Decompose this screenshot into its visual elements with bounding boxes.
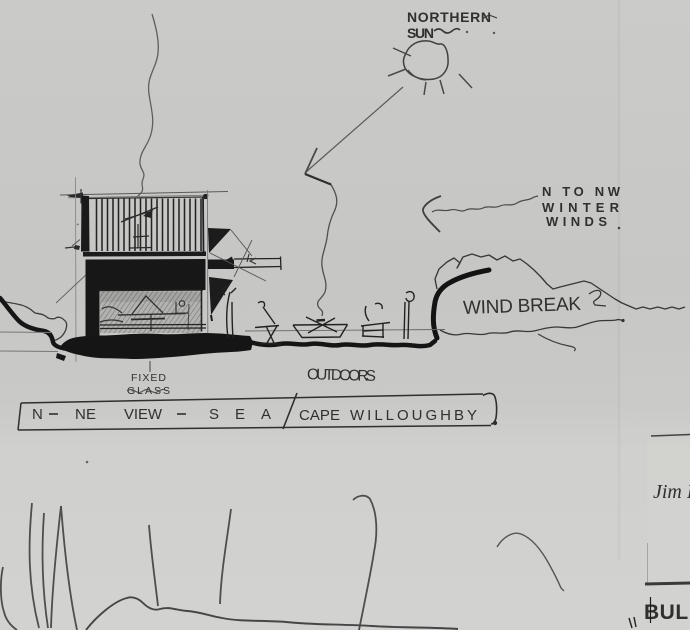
svg-text:NORTHERN: NORTHERN xyxy=(407,9,491,25)
svg-text:GLASS: GLASS xyxy=(127,385,170,397)
svg-text:WINDS: WINDS xyxy=(546,214,607,229)
svg-text:WILLOUGHBY: WILLOUGHBY xyxy=(350,407,477,424)
svg-text:VIEW: VIEW xyxy=(124,406,163,423)
svg-text:Jim Ri: Jim Ri xyxy=(653,481,690,503)
svg-text:WIND BREAK: WIND BREAK xyxy=(463,294,582,319)
svg-text:OUTDOORS: OUTDOORS xyxy=(307,366,376,385)
svg-text:N: N xyxy=(32,406,43,423)
svg-text:SUN: SUN xyxy=(407,25,434,41)
svg-text:SEA: SEA xyxy=(209,406,280,423)
svg-text:FIXED: FIXED xyxy=(131,372,166,384)
svg-text:CAPE: CAPE xyxy=(299,407,340,424)
svg-text:NE: NE xyxy=(75,406,96,423)
